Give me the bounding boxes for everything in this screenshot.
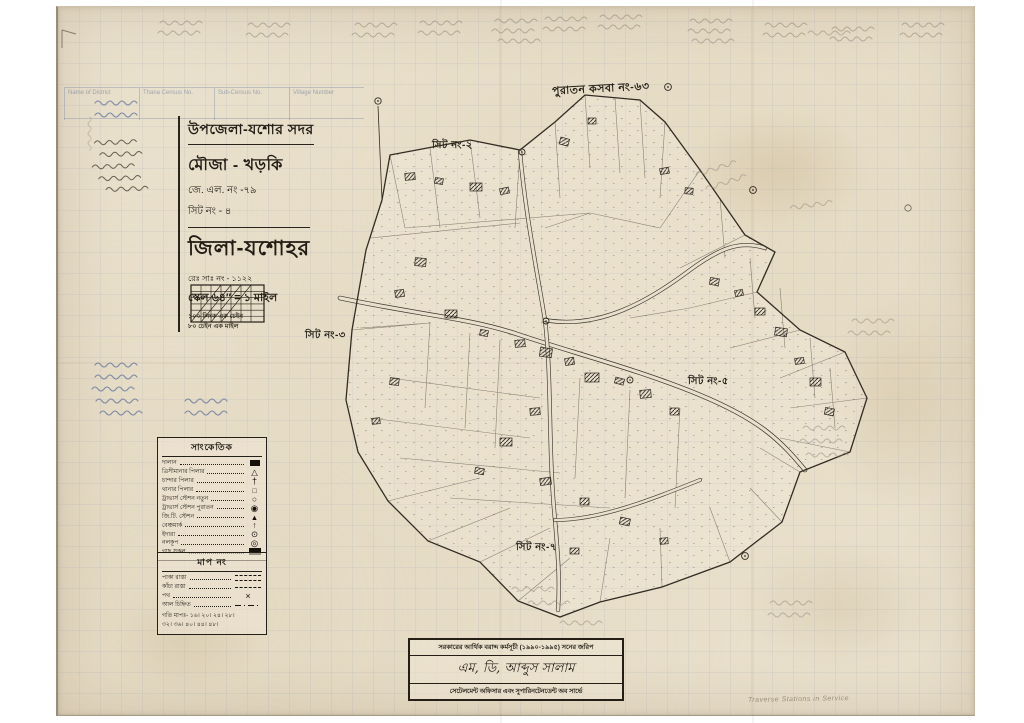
legend-row: পাকা রাস্তা [162,574,262,583]
legend-row: ট্রাভার্স স্টেশন নতুন [162,495,262,504]
sheet-7-label: সিট নং-৭ [516,540,557,557]
legend-row: নলকূপ [162,539,262,548]
sheet-3-label: সিট নং-৩ [305,328,346,345]
paved-road-icon [234,575,262,581]
stamp-signature: এম, ডি, আব্দুস সালাম [410,656,622,683]
legend-symbols-header: সাংকেতিক [162,440,262,457]
fold-line [56,362,972,364]
legend-row: পথ× [162,592,262,601]
mouza-title: মৌজা - খড়কি [188,152,378,179]
faint-header-district: Name of District [64,88,143,120]
sheet-number: সিট নং - ৪ [188,204,378,221]
legend-lines-header: মাপ নং [162,555,262,572]
district-title: জিলা-যশোহর [188,227,310,267]
legend-row: ইদারা [162,530,262,539]
tubewell-icon [247,539,262,548]
path-icon: × [234,592,262,601]
traverse-old-icon [247,504,262,513]
legend-row: আল চিহ্নিত [162,601,262,610]
jl-number: জে. এল. নং -৭৯ [188,183,378,200]
legend-symbols-box: সাংকেতিক দালান ত্রিসীমানার পিলার চান্দার… [157,437,267,561]
scanned-mouza-map-sheet: Name of District Thana Census No. Sub-Ce… [0,0,1024,723]
sheet-5-label: সিট নং-৫ [688,374,729,391]
legend-lines-box: মাপ নং পাকা রাস্তা কাঁচা রাস্তা পথ× আল চ… [157,552,267,635]
upazila-title: উপজেলা-যশোর সদর [188,118,314,145]
legend-row: জি.টি. স্টেশন [162,512,262,521]
traverse-new-icon [247,495,262,504]
sheet-2-label: সিট নং-২ [432,138,473,155]
cross-pillar-icon [247,477,262,486]
legend-row: দালান [162,459,262,468]
legend-row: ত্রিসীমানার পিলার [162,468,262,477]
stamp-line-1: সরকারের আর্থিক বরাদ্দ কর্মসূচী (১৯৯০-১৯৯… [410,640,622,656]
diagonal-scale-bar [190,284,266,324]
legend-row: বেঞ্চমার্ক [162,521,262,530]
certification-stamp: সরকারের আর্থিক বরাদ্দ কর্মসূচী (১৯৯০-১৯৯… [408,638,624,701]
legend-row: চান্দার পিলার [162,477,262,486]
stamp-designation: সেটেলমেন্ট অফিসার এবং সুপারিনটেনডেন্ট অব… [410,683,622,699]
plot-scale-row: গতি মাপঃ- ১৬। ২০। ২৪। ২৮। ৩২। ৩৬। ৪০। ৪৪… [162,612,262,631]
legend-row: ট্রাভার্স স্টেশন পুরাতন [162,503,262,512]
legend-row: থানার পিলার [162,486,262,495]
unpaved-road-icon [234,587,262,588]
boundary-mark-icon [234,605,262,606]
